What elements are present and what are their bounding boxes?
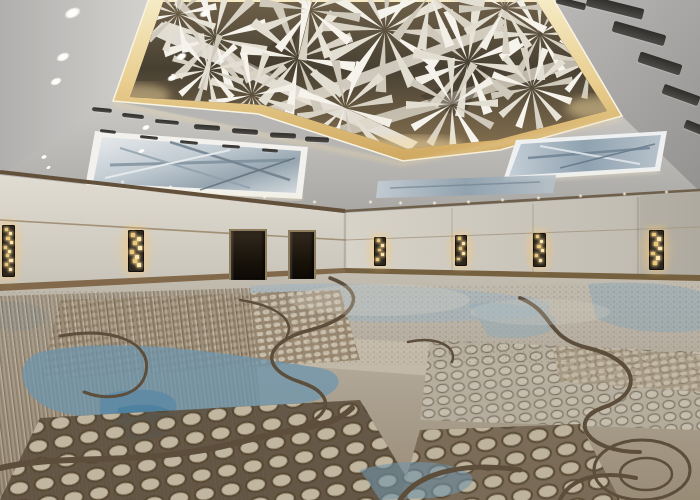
ballroom-photo bbox=[0, 0, 700, 500]
ballroom-scene bbox=[0, 0, 700, 500]
carpet bbox=[0, 270, 700, 500]
wall-right-return bbox=[640, 192, 700, 281]
